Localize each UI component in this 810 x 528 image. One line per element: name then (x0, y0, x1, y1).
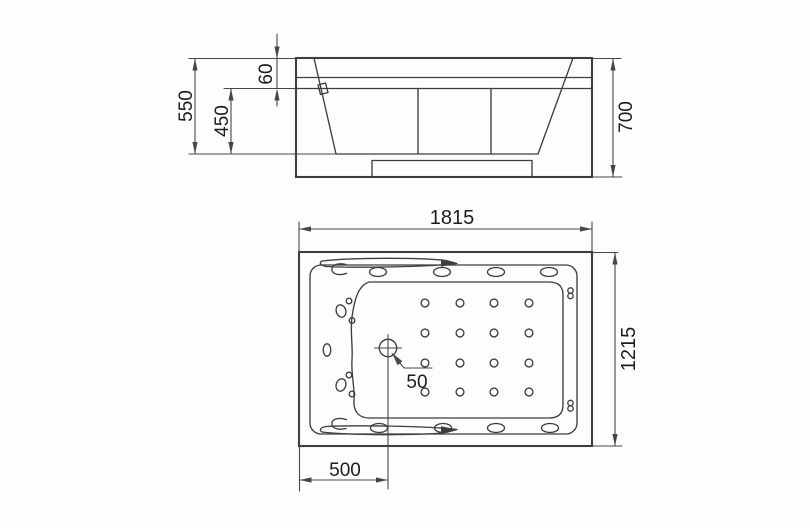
dim-rim-height-label: 60 (256, 63, 277, 84)
dim-total-height: 700 (592, 59, 637, 178)
side-basin-dividers (418, 89, 491, 155)
side-nozzle-top-right (568, 288, 573, 299)
back-jet (334, 378, 347, 393)
air-jet-hole (456, 359, 464, 367)
air-jet-hole (525, 329, 533, 337)
side-tub-outline (296, 58, 592, 177)
dim-rim-height: 60 (256, 34, 280, 106)
dim-width-label: 1215 (618, 327, 640, 372)
wall-fitting (323, 344, 331, 356)
grab-rail-outline (320, 258, 457, 267)
arrowhead (274, 47, 279, 59)
air-jet-hole (421, 359, 429, 367)
bathtub-dimension-drawing: 550 60 450 700 (0, 0, 810, 528)
arrowhead (192, 142, 197, 154)
dim-basin-depth-label: 450 (212, 105, 233, 137)
arrowhead (228, 142, 233, 154)
arrowhead (580, 226, 592, 231)
dim-total-height-label: 700 (616, 101, 637, 133)
side-rim-lines (296, 78, 592, 89)
back-jet-hole (346, 372, 352, 378)
plan-tub-outline (299, 252, 592, 446)
water-jet (434, 268, 451, 277)
dim-width: 1215 (593, 253, 640, 447)
technical-drawing-canvas: 550 60 450 700 (0, 0, 810, 528)
nozzle-hole (568, 293, 573, 298)
arrowhead (612, 434, 617, 446)
basin-floor-edge (351, 282, 563, 418)
air-jet-hole (525, 299, 533, 307)
air-jet-hole (490, 359, 498, 367)
back-jet-hole (346, 298, 352, 304)
air-jet-hole (490, 329, 498, 337)
air-jet-hole (421, 299, 429, 307)
rim-jets-bottom (371, 424, 559, 433)
back-jet (334, 304, 347, 319)
side-basin-profile (314, 58, 573, 154)
dim-length-label: 1815 (430, 207, 475, 229)
rim-jets-top (370, 268, 558, 277)
nozzle-hole (568, 406, 573, 411)
grab-rail-hook (332, 418, 347, 429)
arrowhead (610, 165, 615, 177)
arrowhead (376, 477, 388, 482)
water-jet (542, 424, 559, 433)
apron-base (372, 161, 532, 178)
water-jet (488, 268, 505, 277)
arrowhead (299, 226, 311, 231)
dim-drain-offset: 500 (300, 446, 389, 491)
back-jet-cluster-bottom (334, 372, 354, 397)
arrowhead (612, 253, 617, 265)
air-jet-hole (490, 299, 498, 307)
air-jet-grid (421, 299, 533, 396)
air-jet-hole (456, 329, 464, 337)
side-nozzle-bottom-right (568, 400, 573, 411)
dim-basin-depth: 450 (212, 89, 296, 155)
water-jet (370, 268, 387, 277)
arrowhead (610, 59, 615, 71)
dim-drain-offset-label: 500 (329, 460, 361, 481)
top-plan-view: 50 1815 1215 500 (299, 207, 640, 491)
arrowhead (274, 89, 279, 101)
dim-overall-height-label: 550 (176, 90, 197, 122)
water-jet (488, 424, 505, 433)
air-jet-hole (456, 388, 464, 396)
water-jet (371, 424, 388, 433)
air-jet-hole (525, 388, 533, 396)
air-jet-hole (490, 388, 498, 396)
grab-rail-top (320, 258, 457, 274)
side-elevation-view: 550 60 450 700 (176, 34, 637, 177)
nozzle-hole (568, 400, 573, 405)
arrowhead (192, 59, 197, 71)
grab-rail-bottom (320, 418, 457, 434)
nozzle-hole (568, 288, 573, 293)
drain-symbol: 50 (375, 335, 433, 490)
water-jet (541, 268, 558, 277)
arrowhead (228, 89, 233, 101)
air-jet-hole (456, 299, 464, 307)
air-jet-hole (421, 329, 429, 337)
air-jet-hole (525, 359, 533, 367)
plan-rim-edge (310, 265, 577, 434)
dim-drain-diameter-label: 50 (406, 372, 427, 393)
dim-length: 1815 (299, 207, 592, 251)
arrowhead (300, 477, 312, 482)
